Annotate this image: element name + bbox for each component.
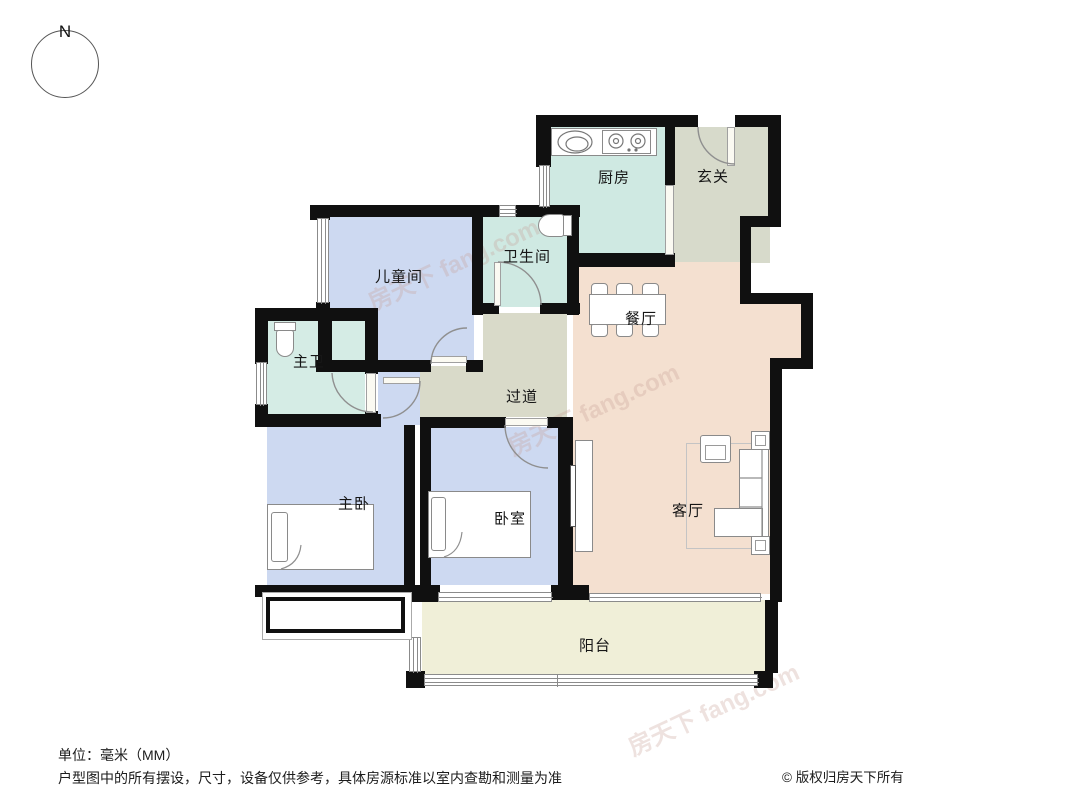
- wall: [472, 205, 483, 315]
- wall: [665, 127, 675, 185]
- tv: [570, 465, 576, 527]
- room-corridor: [420, 366, 567, 417]
- wall: [466, 360, 483, 372]
- wall: [404, 425, 415, 587]
- wall: [770, 358, 782, 602]
- window: [317, 218, 329, 303]
- wall: [740, 216, 751, 304]
- wall: [255, 308, 268, 364]
- room-label-bathroom: 卫生间: [503, 246, 551, 267]
- wall: [540, 303, 580, 314]
- room-label-dining: 餐厅: [625, 308, 657, 329]
- pillow: [431, 497, 446, 551]
- door-leaf: [383, 377, 420, 384]
- wall: [551, 585, 589, 600]
- window: [409, 637, 421, 672]
- toilet-bowl: [276, 330, 294, 357]
- balcony-railing: [424, 674, 758, 686]
- wall: [765, 600, 778, 673]
- door-leaf: [665, 185, 674, 255]
- compass-north-label: N: [59, 22, 71, 42]
- room-label-living: 客厅: [672, 500, 704, 521]
- toilet-bowl: [538, 214, 564, 237]
- wall: [255, 308, 366, 321]
- room-label-corridor: 过道: [506, 386, 538, 407]
- room-label-bedroom: 卧室: [494, 508, 526, 529]
- coffee-table: [714, 508, 763, 537]
- room-label-master-bedroom: 主卧: [338, 493, 370, 514]
- door-leaf: [505, 418, 548, 426]
- wall: [567, 253, 675, 267]
- room-entry: [672, 127, 770, 263]
- wall: [536, 115, 551, 167]
- stove: [602, 130, 651, 154]
- disclaimer-text: 户型图中的所有摆设，尺寸，设备仅供参考，具体房源标准以室内查勘和测量为准: [58, 768, 562, 788]
- room-label-kitchen: 厨房: [598, 167, 630, 188]
- window: [499, 205, 516, 217]
- bay-window: [262, 592, 412, 640]
- door-leaf: [366, 373, 376, 413]
- tv-cabinet: [575, 440, 593, 552]
- wall: [310, 205, 473, 217]
- room-label-children: 儿童间: [375, 266, 423, 287]
- wall: [768, 115, 781, 227]
- door-leaf: [727, 127, 735, 166]
- unit-note: 单位：毫米（MM）: [58, 745, 179, 765]
- wall: [408, 585, 440, 602]
- compass: N: [26, 16, 104, 102]
- door-leaf: [431, 356, 467, 363]
- wall: [406, 671, 425, 688]
- dining-chair: [591, 324, 608, 337]
- armchair-seat: [705, 445, 726, 460]
- wall: [538, 115, 698, 127]
- room-corridor-upper: [483, 313, 567, 368]
- door-leaf: [494, 262, 501, 306]
- window: [256, 362, 267, 405]
- window-balcony-door: [438, 592, 552, 602]
- room-label-master-bath: 主卫: [293, 351, 325, 372]
- wall: [420, 417, 506, 428]
- floorplan-canvas: N 房天下 fang.com 房天下 fang.com 房天下 fang.com: [0, 0, 1066, 800]
- window: [539, 165, 550, 207]
- copyright-text: © 版权归房天下所有: [782, 766, 904, 786]
- window-balcony-door: [589, 593, 761, 602]
- room-label-entry: 玄关: [697, 166, 729, 187]
- wall: [365, 308, 378, 374]
- wall: [255, 414, 381, 427]
- side-table-top: [755, 435, 766, 446]
- room-label-balcony: 阳台: [579, 635, 611, 656]
- side-table-top: [755, 540, 766, 551]
- pillow: [271, 512, 288, 562]
